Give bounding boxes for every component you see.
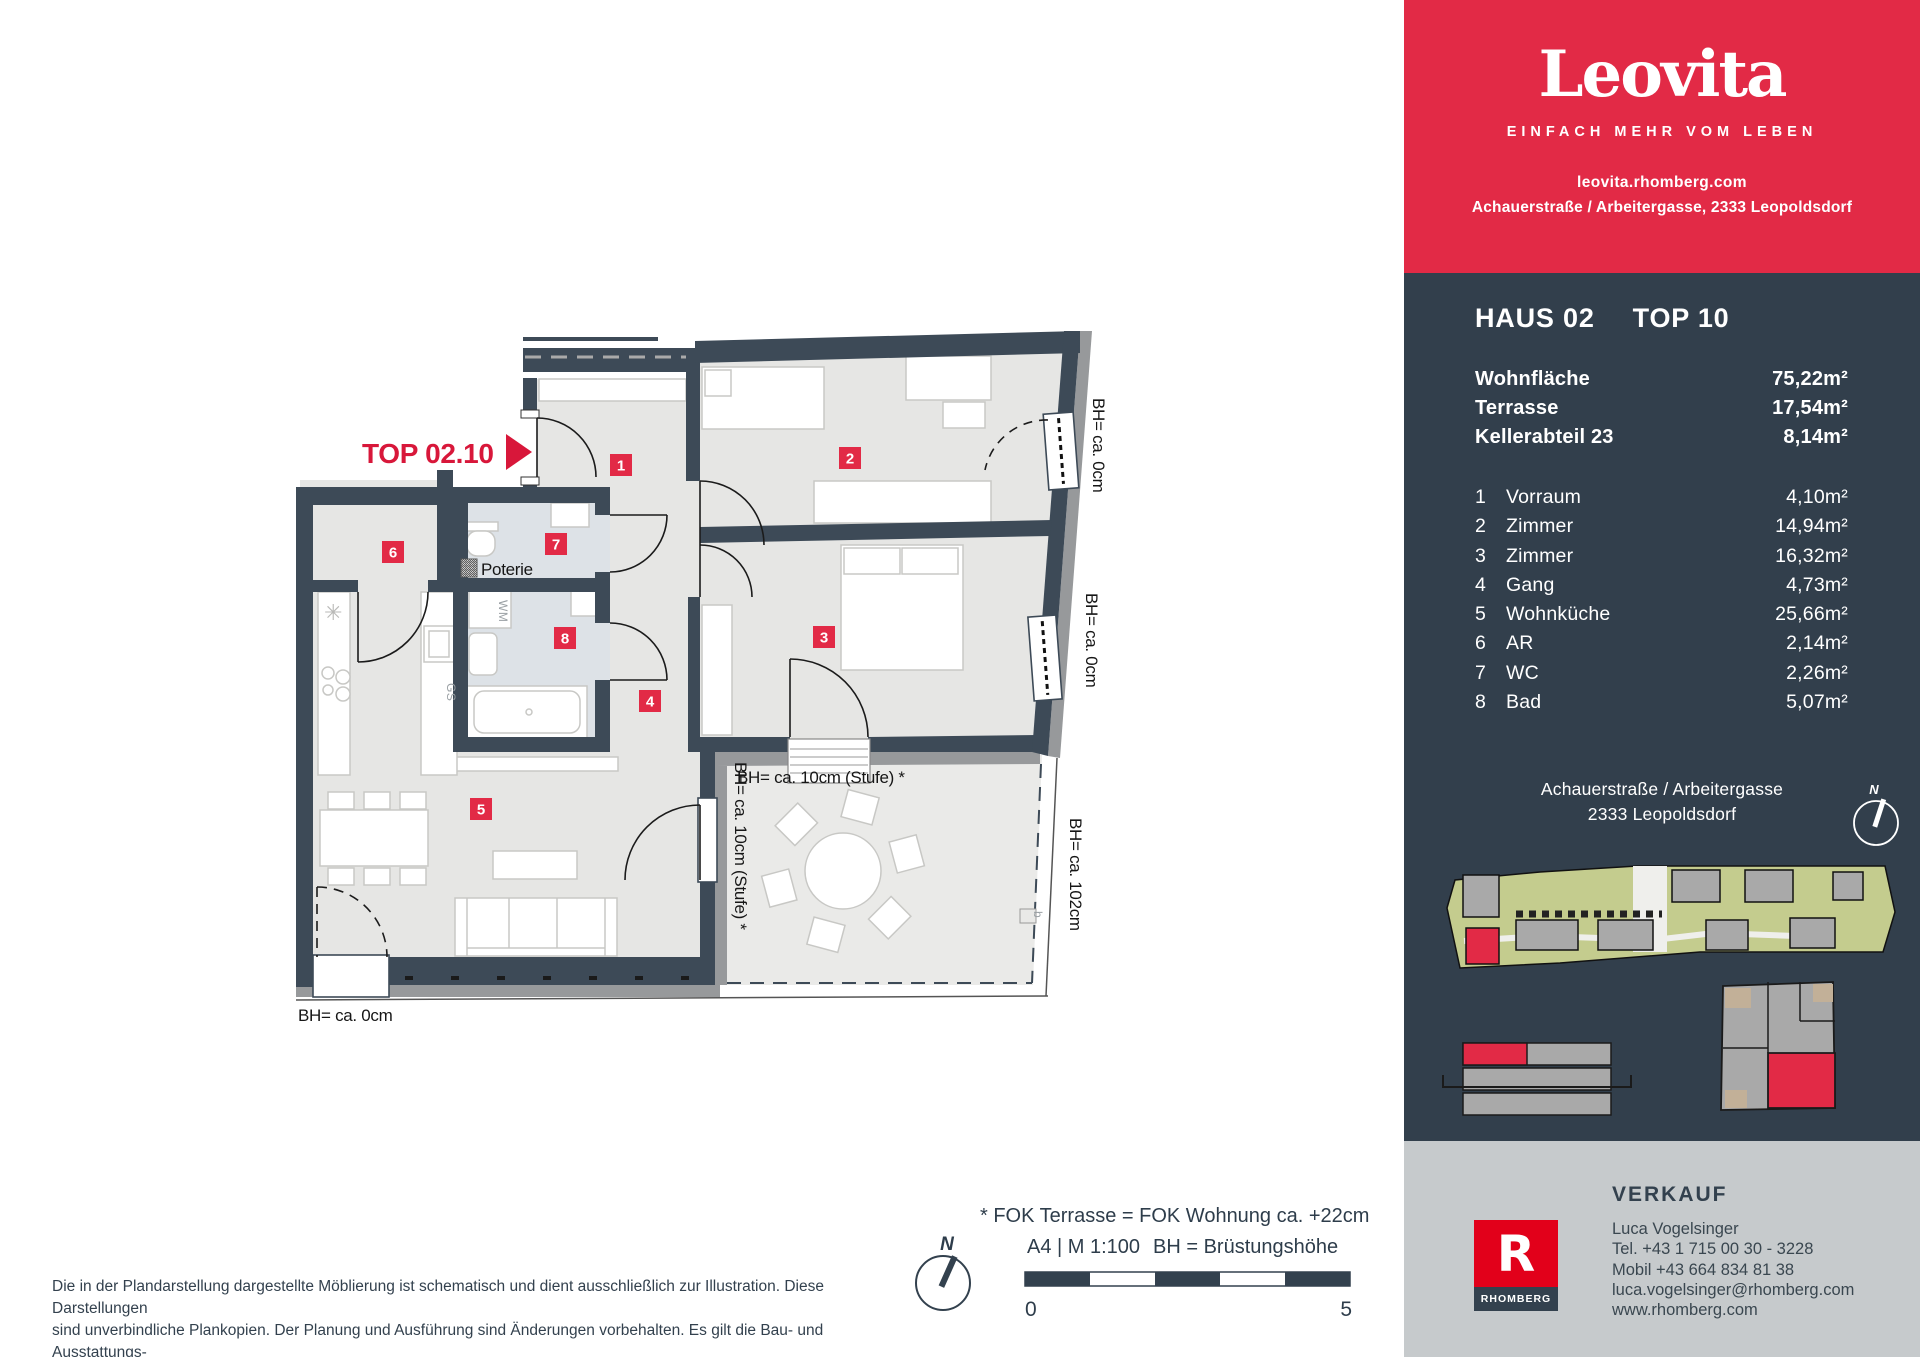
room-nr: 5 <box>1475 600 1506 629</box>
chair <box>328 792 354 809</box>
room-nr: 1 <box>1475 483 1506 512</box>
room-area: 25,66m² <box>1775 600 1848 629</box>
room-nr: 4 <box>1475 571 1506 600</box>
unit-highlighted <box>1768 1053 1835 1108</box>
room-name: Gang <box>1506 571 1786 600</box>
elevation-diagram <box>1443 1043 1631 1115</box>
unit-title: HAUS 02TOP 10 <box>1475 303 1768 334</box>
rhomberg-logo-caption: RHOMBERG <box>1474 1287 1558 1311</box>
chair <box>400 868 426 885</box>
unit-info-panel: N <box>1404 273 1920 1141</box>
room-area: 2,26m² <box>1786 659 1848 688</box>
disclaimer: Die in der Plandarstellung dargestellte … <box>52 1276 864 1357</box>
location-street: Achauerstraße / Arbeitergasse <box>1404 777 1920 802</box>
cooktop-burner <box>336 670 350 684</box>
room-list: 1 Vorraum 4,10m² 2 Zimmer 14,94m² 3 Zimm… <box>1475 483 1848 717</box>
verkauf-heading: VERKAUF <box>1612 1183 1728 1207</box>
site-highlighted-building <box>1466 928 1499 964</box>
brand-tagline: EINFACH MEHR VOM LEBEN <box>1404 124 1920 140</box>
rhomberg-logo: R RHOMBERG <box>1474 1220 1558 1311</box>
pillow <box>844 548 900 574</box>
area-label: Kellerabteil 23 <box>1475 423 1614 452</box>
svg-text:8: 8 <box>561 631 569 648</box>
room-nr: 7 <box>1475 659 1506 688</box>
wardrobe <box>702 605 732 735</box>
svg-text:1: 1 <box>617 458 625 475</box>
cooktop-burner <box>322 667 334 679</box>
room-row: 8 Bad 5,07m² <box>1475 688 1848 717</box>
disclaimer-line: Die in der Plandarstellung dargestellte … <box>52 1276 864 1320</box>
room-nr: 3 <box>1475 542 1506 571</box>
contact-email: luca.vogelsinger@rhomberg.com <box>1612 1280 1854 1300</box>
washbasin <box>469 633 497 675</box>
brand-address: Achauerstraße / Arbeitergasse, 2333 Leop… <box>1404 199 1920 217</box>
scale-zero: 0 <box>1025 1298 1037 1321</box>
north-compass: N <box>916 1234 970 1310</box>
area-row: Wohnfläche 75,22m² <box>1475 365 1848 394</box>
room-name: AR <box>1506 629 1786 658</box>
contact-tel: Tel. +43 1 715 00 30 - 3228 <box>1612 1239 1854 1259</box>
area-label: Wohnfläche <box>1475 365 1590 394</box>
closet <box>539 379 686 401</box>
area-value: 75,22m² <box>1772 365 1848 394</box>
room-row: 1 Vorraum 4,10m² <box>1475 483 1848 512</box>
contact-web: www.rhomberg.com <box>1612 1300 1854 1320</box>
room-badge-5: 5 <box>470 798 492 820</box>
area-row: Terrasse 17,54m² <box>1475 394 1848 423</box>
room-badge-7: 7 <box>545 533 567 555</box>
format-scale: A4 | M 1:100 <box>1027 1236 1140 1258</box>
svg-text:5: 5 <box>477 802 485 819</box>
contact-name: Luca Vogelsinger <box>1612 1219 1854 1239</box>
svg-text:3: 3 <box>820 630 828 647</box>
site-plan <box>1447 866 1895 968</box>
elevation-highlighted-unit <box>1463 1043 1527 1065</box>
toilet <box>467 531 495 556</box>
chair <box>943 402 985 428</box>
room-nr: 8 <box>1475 688 1506 717</box>
room-area: 16,32m² <box>1775 542 1848 571</box>
area-value: 8,14m² <box>1783 423 1848 452</box>
chair <box>364 792 390 809</box>
sideboard <box>455 757 618 771</box>
room-row: 6 AR 2,14m² <box>1475 629 1848 658</box>
room-badge-2: 2 <box>839 447 861 469</box>
room-name: Bad <box>1506 688 1786 717</box>
scale-five: 5 <box>1340 1298 1352 1321</box>
unit-label: TOP 02.10 <box>362 434 532 470</box>
balcony-door-zimmer2 <box>1043 412 1079 490</box>
room-badge-3: 3 <box>813 626 835 648</box>
room-name: WC <box>1506 659 1786 688</box>
room-badge-4: 4 <box>639 690 661 712</box>
area-value: 17,54m² <box>1772 394 1848 423</box>
haus-number: HAUS 02 <box>1475 303 1595 333</box>
svg-text:6: 6 <box>389 545 397 562</box>
bh-annotation: BH= ca. 10cm (Stufe) * <box>737 768 905 787</box>
chair <box>400 792 426 809</box>
terrace-area <box>727 755 1042 985</box>
bh-annotation: BH= ca. 0cm <box>1089 398 1108 493</box>
room-name: Wohnküche <box>1506 600 1775 629</box>
room-area: 14,94m² <box>1775 512 1848 541</box>
area-label: Terrasse <box>1475 394 1559 423</box>
bathtub-drain <box>526 709 532 715</box>
bh-legend: BH = Brüstungshöhe <box>1153 1236 1338 1258</box>
room-badge-6: 6 <box>382 541 404 563</box>
room-nr: 6 <box>1475 629 1506 658</box>
room-nr: 2 <box>1475 512 1506 541</box>
north-label: N <box>940 1234 955 1255</box>
floor-plan-drawing: BH= ca. 0cm BH= ca. 0cm BH= ca. 102cm BH… <box>0 0 1404 1357</box>
cooktop-burner <box>336 687 350 701</box>
gs-label: GS <box>444 683 458 701</box>
bh-annotation: BH= ca. 10cm (Stufe) * <box>731 762 750 930</box>
dining-table <box>320 810 428 866</box>
room-badge-8: 8 <box>554 627 576 649</box>
brand-header: Leovita EINFACH MEHR VOM LEBEN leovita.r… <box>1404 0 1920 273</box>
bh-annotation: BH= ca. 102cm <box>1066 818 1085 931</box>
room-row: 5 Wohnküche 25,66m² <box>1475 600 1848 629</box>
room-row: 2 Zimmer 14,94m² <box>1475 512 1848 541</box>
chair <box>364 868 390 885</box>
toilet-cistern <box>464 522 498 531</box>
room-name: Zimmer <box>1506 542 1775 571</box>
poterie-label: Poterie <box>481 560 533 579</box>
room-row: 7 WC 2,26m² <box>1475 659 1848 688</box>
area-summary: Wohnfläche 75,22m² Terrasse 17,54m² Kell… <box>1475 365 1848 452</box>
brand-website: leovita.rhomberg.com <box>1404 174 1920 192</box>
room-area: 4,73m² <box>1786 571 1848 600</box>
top-number: TOP 10 <box>1633 303 1730 333</box>
leovita-logo: Leovita <box>1404 40 1920 110</box>
room-area: 5,07m² <box>1786 688 1848 717</box>
kitchen-sink-symbol: ✳ <box>324 600 342 625</box>
poterie-icon <box>461 559 477 577</box>
svg-text:7: 7 <box>552 537 560 554</box>
cooktop-burner <box>323 685 333 695</box>
contact-bar: R RHOMBERG VERKAUF Luca Vogelsinger Tel.… <box>1404 1141 1920 1357</box>
location-block: Achauerstraße / Arbeitergasse 2333 Leopo… <box>1404 777 1920 827</box>
terrace-table <box>805 833 881 909</box>
b-marker-label: b <box>1031 911 1045 918</box>
pillow <box>902 548 958 574</box>
washbasin <box>551 503 589 527</box>
unit-label-text: TOP 02.10 <box>362 438 494 469</box>
floorplan-sheet: BH= ca. 0cm BH= ca. 0cm BH= ca. 102cm BH… <box>0 0 1920 1357</box>
wm-label: WM <box>496 600 510 622</box>
contact-details: Luca Vogelsinger Tel. +43 1 715 00 30 - … <box>1612 1219 1854 1320</box>
window-zimmer3 <box>1028 615 1062 701</box>
area-row: Kellerabteil 23 8,14m² <box>1475 423 1848 452</box>
floor-unit-diagram <box>1721 982 1835 1110</box>
svg-text:4: 4 <box>646 694 655 711</box>
room-area: 2,14m² <box>1786 629 1848 658</box>
room-area: 4,10m² <box>1786 483 1848 512</box>
chair <box>328 868 354 885</box>
coffee-table <box>493 851 577 879</box>
pillow <box>705 370 731 396</box>
kitchen-sink-basin <box>429 631 449 657</box>
contact-mobil: Mobil +43 664 834 81 38 <box>1612 1260 1854 1280</box>
scale-bar: 0 5 <box>1025 1272 1352 1321</box>
room-name: Vorraum <box>1506 483 1786 512</box>
dresser <box>814 481 991 523</box>
room-badge-1: 1 <box>610 454 632 476</box>
room-name: Zimmer <box>1506 512 1775 541</box>
sidebar: Leovita EINFACH MEHR VOM LEBEN leovita.r… <box>1404 0 1920 1357</box>
room-row: 3 Zimmer 16,32m² <box>1475 542 1848 571</box>
unit-label-arrow-icon <box>506 434 532 470</box>
svg-text:2: 2 <box>846 451 854 468</box>
bh-annotation: BH= ca. 0cm <box>1082 593 1101 688</box>
fok-note: * FOK Terrasse = FOK Wohnung ca. +22cm <box>980 1205 1369 1227</box>
rhomberg-logo-icon: R <box>1474 1220 1558 1287</box>
bh-annotation: BH= ca. 0cm <box>298 1006 393 1025</box>
plan-notes: * FOK Terrasse = FOK Wohnung ca. +22cm A… <box>980 1205 1369 1258</box>
disclaimer-line: sind unverbindliche Plankopien. Der Plan… <box>52 1320 864 1357</box>
room-row: 4 Gang 4,73m² <box>1475 571 1848 600</box>
desk <box>906 356 991 400</box>
location-city: 2333 Leopoldsdorf <box>1404 802 1920 827</box>
